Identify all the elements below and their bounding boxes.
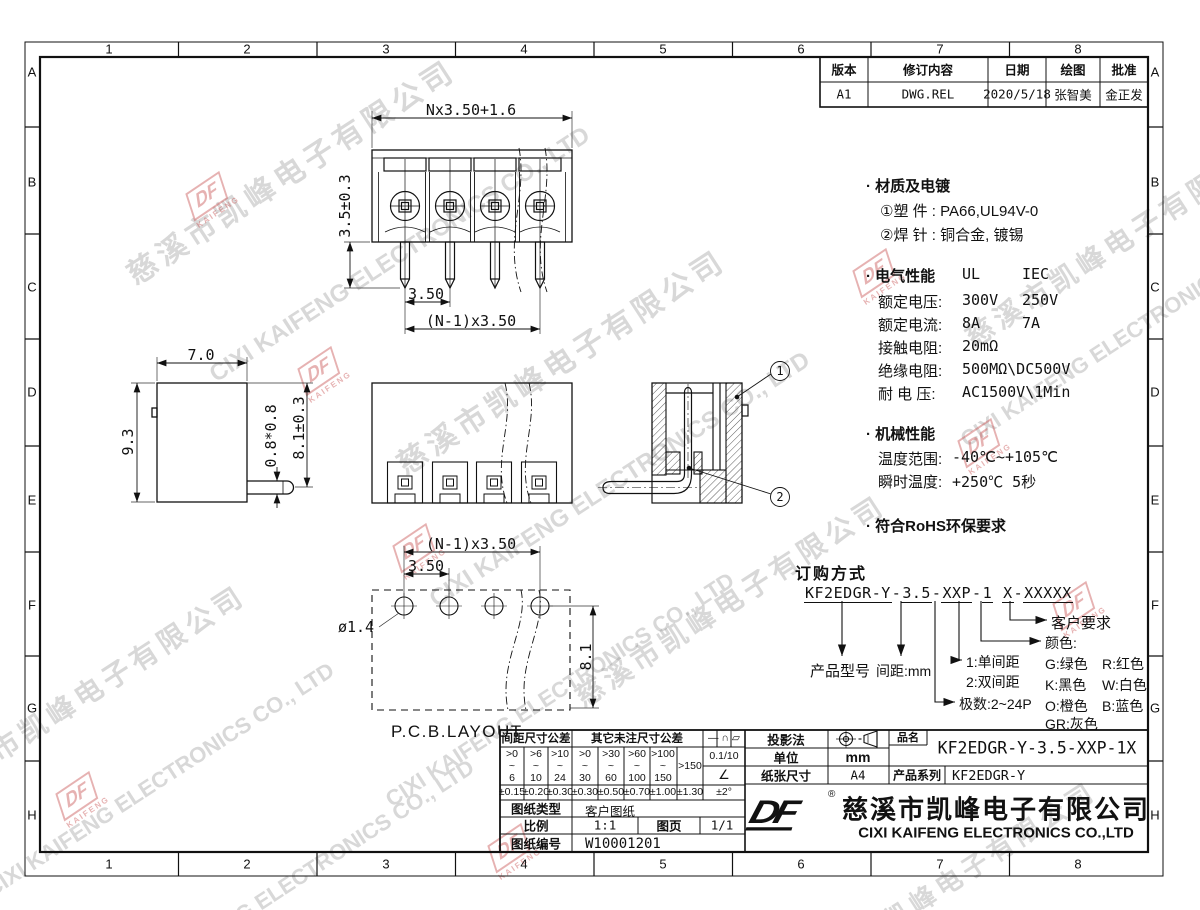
frame-col-label: 5: [659, 42, 666, 57]
frame-col-label: 5: [659, 857, 666, 872]
ordering-label-single-row: 1:单间距: [966, 652, 1020, 672]
dim-hole-diameter: ø1.4: [338, 618, 374, 636]
revision-drawn-by: 张智美: [1054, 85, 1092, 104]
tolerance-value: ±0.50: [598, 786, 624, 798]
frame-row-label: F: [1151, 598, 1159, 613]
revision-header-approved: 批准: [1111, 60, 1136, 79]
tolerance-value: ±0.30: [572, 786, 598, 798]
dim-pcb-pitch: 3.50: [408, 557, 444, 575]
tolerance-range: >60 ~ 100: [628, 748, 646, 784]
spec-label: 额定电流:: [878, 314, 942, 335]
electrical-section-title: · 电气性能: [866, 265, 935, 286]
frame-col-label: 6: [797, 857, 804, 872]
dim-pcb-span: (N-1)x3.50: [426, 535, 516, 553]
material-section-title: · 材质及电镀: [866, 175, 950, 196]
page-value: 1/1: [711, 818, 734, 833]
frame-col-label: 2: [243, 857, 250, 872]
color-option-red: R:红色: [1102, 654, 1144, 674]
frame-row-label: E: [1151, 493, 1160, 508]
company-name-en: CIXI KAIFENG ELECTRONICS CO.,LTD: [858, 825, 1134, 842]
material-pin: ②焊 针 : 铜合金, 镀锡: [880, 224, 1023, 245]
frame-col-label: 6: [797, 42, 804, 57]
frame-col-label: 8: [1074, 857, 1081, 872]
tolerance-range: >0 ~ 6: [506, 748, 518, 784]
unit-value: mm: [846, 749, 871, 765]
dim-body-depth: 7.0: [187, 346, 214, 364]
spec-label: 耐 电 压:: [878, 383, 936, 404]
code-sep: -: [892, 584, 902, 602]
code-custom: XXXXX: [1023, 584, 1073, 603]
ordering-label-pitch: 间距:mm: [876, 661, 931, 681]
spec-label: 绝缘电阻:: [878, 360, 942, 381]
frame-col-label: 3: [382, 42, 389, 57]
dim-pin-size: 0.8*0.8: [262, 404, 280, 467]
part-name-label: 品名: [897, 729, 919, 745]
tolerance-range: >150: [678, 760, 702, 772]
unit-label: 单位: [773, 748, 798, 767]
revision-version: A1: [836, 87, 851, 102]
mechanical-section-title: · 机械性能: [866, 423, 935, 444]
revision-approved-by: 金正发: [1105, 85, 1143, 104]
electrical-col-ul: UL: [962, 265, 980, 283]
color-option-black: K:黑色: [1045, 675, 1086, 695]
page-label: 图页: [656, 816, 681, 835]
frame-row-label: A: [28, 65, 37, 80]
code-model: KF2EDGR-Y: [804, 584, 892, 603]
balloon-1: 1: [776, 364, 783, 378]
frame-row-label: B: [28, 175, 37, 190]
dim-span: (N-1)x3.50: [426, 312, 516, 330]
spec-iec-value: 250V: [1022, 291, 1058, 309]
revision-content: DWG.REL: [902, 87, 955, 102]
tolerance-range: >30 ~ 60: [602, 748, 620, 784]
ordering-label-double-row: 2:双间距: [966, 672, 1020, 692]
color-option-orange: O:橙色: [1045, 696, 1088, 716]
tolerance-ratio: 0.1/10: [709, 750, 738, 762]
frame-col-label: 7: [936, 42, 943, 57]
frame-col-label: 4: [520, 42, 527, 57]
tolerance-angle: ±2°: [716, 786, 732, 798]
frame-col-label: 7: [936, 857, 943, 872]
tolerance-symbols: — ∩ ▱: [708, 732, 740, 744]
tolerance-other-header: 其它未注尺寸公差: [591, 730, 683, 746]
paper-size-value: A4: [850, 768, 865, 783]
drawing-no-value: W10001201: [585, 836, 661, 852]
material-plastic: ①塑 件 : PA66,UL94V-0: [880, 200, 1038, 221]
first-angle-projection-icon: [836, 730, 877, 748]
df-logo-icon: DF: [745, 799, 800, 831]
drawing-no-label: 图纸编号: [511, 834, 561, 853]
frame-row-label: H: [27, 808, 36, 823]
scale-label: 比例: [523, 816, 548, 835]
spec-label: 额定电压:: [878, 291, 942, 312]
drawing-sheet: 慈溪市凯峰电子有限公司 CIXI KAIFENG ELECTRONICS CO.…: [0, 0, 1200, 910]
registered-trademark-icon: ®: [828, 789, 835, 800]
frame-col-label: 1: [105, 42, 112, 57]
temp-range-value: -40℃~+105℃: [952, 448, 1058, 466]
color-option-blue: B:蓝色: [1102, 696, 1143, 716]
dim-pitch: 3.50: [408, 285, 444, 303]
ordering-label-model: 产品型号: [810, 660, 870, 681]
dim-pcb-depth: 8.1: [577, 643, 595, 670]
frame-row-label: G: [27, 701, 37, 716]
ordering-label-color: 颜色:: [1045, 633, 1077, 653]
ordering-title: 订购方式: [795, 560, 867, 584]
frame-row-label: H: [1150, 808, 1159, 823]
ordering-code: KF2EDGR-Y-3.5-XXP-1X-XXXXX: [804, 584, 1073, 602]
tolerance-range: >0 ~ 30: [579, 748, 591, 784]
frame-col-label: 1: [105, 857, 112, 872]
code-poles: XXP: [941, 584, 972, 603]
ordering-label-custom: 客户要求: [1051, 612, 1111, 633]
revision-header-content: 修订内容: [903, 60, 953, 79]
peak-temp-value: +250℃ 5秒: [952, 471, 1036, 492]
peak-temp-label: 瞬时温度:: [878, 471, 942, 492]
code-color: X: [1002, 584, 1014, 603]
projection-label: 投影法: [767, 730, 805, 749]
code-sep: -: [932, 584, 942, 602]
spec-label: 接触电阻:: [878, 337, 942, 358]
spec-ul-value: 20mΩ: [962, 337, 998, 355]
product-series-value: KF2EDGR-Y: [952, 768, 1025, 784]
tolerance-pitch-header: 间距尺寸公差: [502, 730, 571, 746]
tolerance-range: >100 ~ 150: [651, 748, 675, 784]
frame-row-label: G: [1150, 701, 1160, 716]
part-name-value: KF2EDGR-Y-3.5-XXP-1X: [938, 739, 1137, 758]
code-sep: -: [1014, 584, 1024, 602]
company-name-cn: 慈溪市凯峰电子有限公司: [842, 790, 1150, 827]
tolerance-value: ±0.15: [499, 786, 525, 798]
frame-row-label: C: [27, 280, 36, 295]
code-pitch: 3.5: [901, 584, 932, 603]
color-option-white: W:白色: [1102, 675, 1147, 695]
color-option-gray: GR:灰色: [1045, 714, 1098, 734]
revision-header-drawn: 绘图: [1060, 60, 1085, 79]
spec-ul-value: 8A: [962, 314, 980, 332]
company-logo: DF: [750, 795, 796, 834]
color-option-green: G:绿色: [1045, 654, 1088, 674]
dim-body-height: 9.3: [119, 428, 137, 455]
revision-date: 2020/5/18: [983, 87, 1051, 102]
frame-col-label: 8: [1074, 42, 1081, 57]
dim-pin-height: 8.1±0.3: [290, 396, 308, 459]
frame-row-label: A: [1151, 65, 1160, 80]
spec-ul-value: 500MΩ\DC500V: [962, 360, 1070, 378]
revision-header-date: 日期: [1004, 60, 1029, 79]
frame-row-label: F: [28, 598, 36, 613]
frame-row-label: D: [27, 385, 36, 400]
tolerance-value: ±1.00: [650, 786, 676, 798]
frame-row-label: B: [1151, 175, 1160, 190]
code-sep: -: [972, 584, 982, 602]
frame-row-label: D: [1150, 385, 1159, 400]
frame-col-label: 3: [382, 857, 389, 872]
ordering-label-poles: 极数:2~24P: [959, 694, 1032, 714]
code-row: 1: [982, 584, 994, 603]
tolerance-range: >6 ~ 10: [530, 748, 542, 784]
spec-ul-value: AC1500V\1Min: [962, 383, 1070, 401]
spec-iec-value: 7A: [1022, 314, 1040, 332]
product-series-label: 产品系列: [893, 767, 941, 784]
frame-col-label: 4: [520, 857, 527, 872]
tolerance-value: ±0.70: [624, 786, 650, 798]
frame-row-label: E: [28, 493, 37, 508]
balloon-2: 2: [776, 490, 783, 504]
paper-size-label: 纸张尺寸: [761, 766, 811, 785]
scale-value: 1:1: [594, 818, 617, 833]
spec-ul-value: 300V: [962, 291, 998, 309]
temp-range-label: 温度范围:: [878, 448, 942, 469]
angle-icon: ∠: [718, 767, 730, 783]
dim-pin-length: 3.5±0.3: [336, 174, 354, 237]
tolerance-value: ±0.20: [523, 786, 549, 798]
revision-header-version: 版本: [831, 60, 856, 79]
dim-total-width: Nx3.50+1.6: [426, 101, 516, 119]
tolerance-value: ±1.30: [677, 786, 703, 798]
rohs-note: · 符合RoHS环保要求: [866, 515, 1006, 536]
frame-row-label: C: [1150, 280, 1159, 295]
tolerance-range: >10 ~ 24: [551, 748, 569, 784]
tolerance-value: ±0.30: [547, 786, 573, 798]
frame-col-label: 2: [243, 42, 250, 57]
electrical-col-iec: IEC: [1022, 265, 1049, 283]
